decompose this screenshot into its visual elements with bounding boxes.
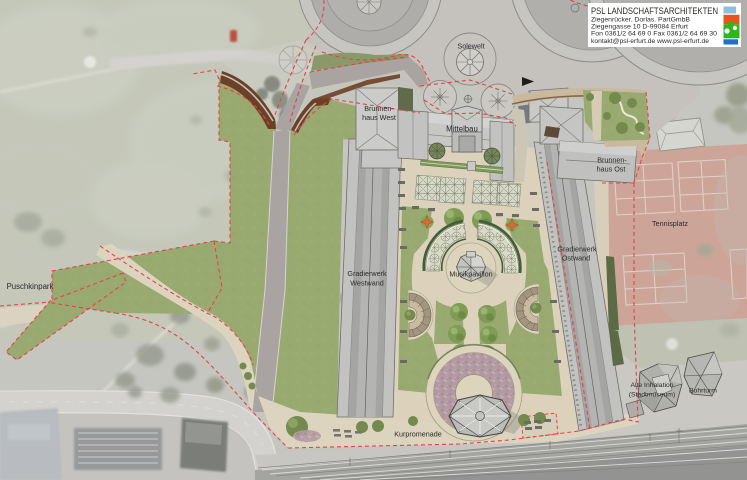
svg-text:Westwand: Westwand <box>350 279 383 288</box>
svg-text:Brunnen-: Brunnen- <box>364 104 394 113</box>
svg-text:Mittelbau: Mittelbau <box>446 125 478 134</box>
svg-text:PSL LANDSCHAFTSARCHITEKTEN: PSL LANDSCHAFTSARCHITEKTEN <box>591 6 718 17</box>
svg-text:Brunnen-: Brunnen- <box>597 156 627 165</box>
svg-text:Kurpromenade: Kurpromenade <box>394 430 442 439</box>
svg-text:Ziegenrücker. Dorlas. PartGmbB: Ziegenrücker. Dorlas. PartGmbB <box>591 17 690 24</box>
svg-text:kontakt@psl-erfurt.de www.psl: kontakt@psl-erfurt.de www.psl-erfurt.de <box>591 38 709 45</box>
svg-text:Gradierwerk: Gradierwerk <box>557 245 597 254</box>
svg-text:Alte Inhalation: Alte Inhalation <box>630 382 673 389</box>
svg-text:(Stadtmuseum): (Stadtmuseum) <box>629 392 675 399</box>
svg-text:Musikpavillon: Musikpavillon <box>449 270 492 279</box>
svg-text:Fon 0361/2 64 69 0 Fax 0361: Fon 0361/2 64 69 0 Fax 0361/2 64 69 30 <box>591 31 717 38</box>
svg-text:Solewelt: Solewelt <box>457 42 484 51</box>
svg-text:Ostwand: Ostwand <box>562 254 590 263</box>
svg-text:Ziegengasse 10 D-99084 Erfur: Ziegengasse 10 D-99084 Erfurt <box>591 24 688 31</box>
svg-text:haus West: haus West <box>362 113 396 122</box>
svg-text:haus Ost: haus Ost <box>597 165 626 174</box>
svg-text:Puschkinpark: Puschkinpark <box>7 282 54 291</box>
svg-text:Gradierwerk: Gradierwerk <box>347 269 387 278</box>
svg-text:Bohrturm: Bohrturm <box>689 388 717 395</box>
svg-text:Tennisplatz: Tennisplatz <box>652 219 688 228</box>
